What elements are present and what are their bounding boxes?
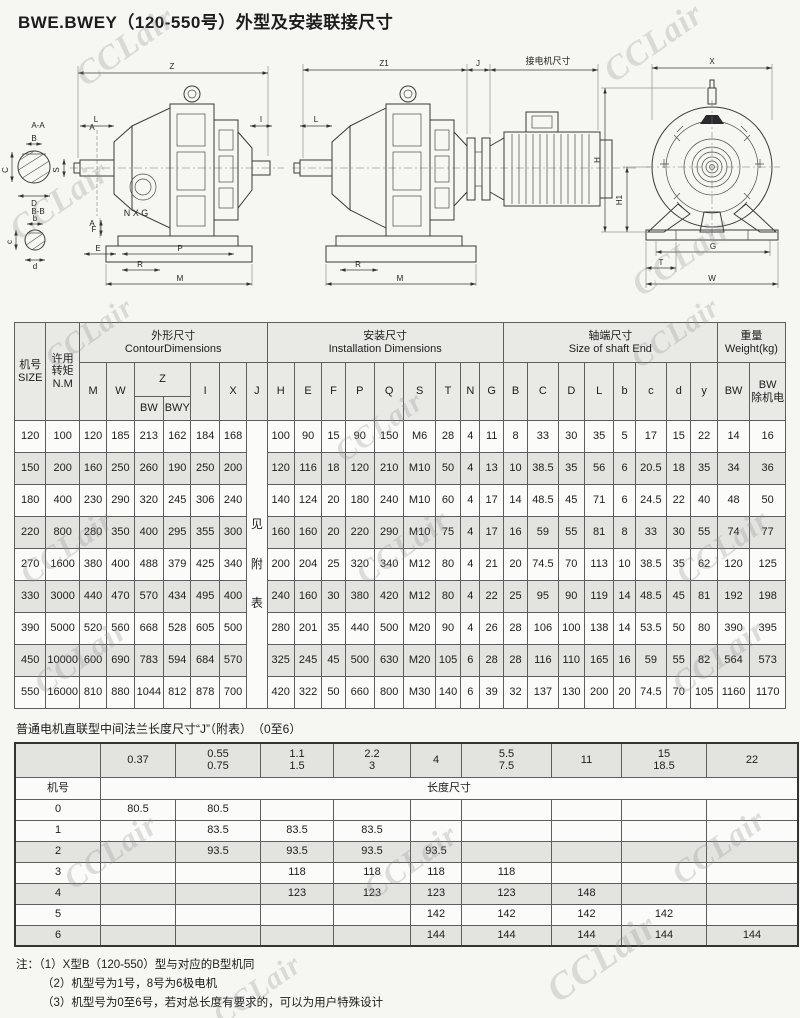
cell: 83.5	[176, 820, 261, 841]
cell: 200	[267, 549, 294, 581]
cell: 379	[164, 549, 191, 581]
cell: 10	[614, 549, 635, 581]
cell: 140	[435, 677, 460, 709]
cell: 440	[345, 613, 374, 645]
cell: 434	[164, 581, 191, 613]
cell: 400	[134, 517, 163, 549]
cell: 684	[191, 645, 219, 677]
dim-label-X: X	[709, 57, 715, 66]
cell: 4	[461, 453, 480, 485]
cell: M10	[404, 485, 435, 517]
cell: 59	[635, 645, 666, 677]
cell: 400	[46, 485, 79, 517]
cell: 322	[294, 677, 321, 709]
cell: 123	[261, 883, 334, 904]
size-row-150: 15020016025026019025020012011618120210M1…	[15, 453, 786, 485]
cell: 201	[294, 613, 321, 645]
cell: 30	[667, 517, 691, 549]
cell: 90	[345, 421, 374, 453]
cell: 32	[503, 677, 527, 709]
flange-row-4: 4123123123123148	[15, 883, 798, 904]
cell	[101, 862, 176, 883]
cell: 59	[528, 517, 558, 549]
cell: 16	[503, 517, 527, 549]
cell: 306	[191, 485, 219, 517]
cell: 28	[435, 421, 460, 453]
cell	[101, 925, 176, 946]
dim-label-Z: Z	[170, 62, 175, 71]
col-L: L	[584, 363, 613, 421]
cell: 150	[375, 421, 404, 453]
cell	[101, 883, 176, 904]
cell: 120	[79, 421, 106, 453]
cell: 162	[164, 421, 191, 453]
cell: 26	[480, 613, 503, 645]
size-row-180: 18040023029032024530624014012420180240M1…	[15, 485, 786, 517]
size-row-120: 120100120185213162184168见附表100901590150M…	[15, 421, 786, 453]
cell: 570	[134, 581, 163, 613]
cell: 4	[461, 485, 480, 517]
size-label-row: 机号长度尺寸	[15, 777, 798, 799]
cell: 17	[635, 421, 666, 453]
footnotes: 注：（1）X型B（120-550）型与对应的B型机同 （2）机型号为1号，8号为…	[16, 956, 383, 1013]
col-BW: BW 除机电	[750, 363, 786, 421]
cell: 93.5	[334, 841, 411, 862]
cell	[411, 799, 462, 820]
dim-label-R2: R	[355, 260, 361, 269]
cell	[622, 799, 707, 820]
cell: 77	[750, 517, 786, 549]
cell: 74.5	[528, 549, 558, 581]
power-col-22: 22	[707, 743, 799, 777]
cell: M10	[404, 517, 435, 549]
cell: 90	[558, 581, 584, 613]
cell: 142	[411, 904, 462, 925]
cell: 3000	[46, 581, 79, 613]
cell: 20.5	[635, 453, 666, 485]
cell: 355	[191, 517, 219, 549]
cell: 25	[503, 581, 527, 613]
cell	[622, 883, 707, 904]
cell	[552, 862, 622, 883]
flange-row-2: 293.593.593.593.5	[15, 841, 798, 862]
cell: 160	[294, 581, 321, 613]
cell: 340	[375, 549, 404, 581]
cell: 56	[584, 453, 613, 485]
cell: 290	[107, 485, 134, 517]
dim-label-M: M	[177, 274, 184, 283]
cell: 38.5	[635, 549, 666, 581]
cell: 120	[717, 549, 749, 581]
cell	[707, 820, 799, 841]
cell: 5000	[46, 613, 79, 645]
cell: 10000	[46, 645, 79, 677]
cell: 570	[219, 645, 246, 677]
cell: M10	[404, 453, 435, 485]
col-H: H	[267, 363, 294, 421]
cell: 110	[558, 645, 584, 677]
cell: 14	[717, 421, 749, 453]
drawing-front-view: X H H1 G T W	[590, 42, 800, 322]
cell: 80.5	[176, 799, 261, 820]
cell: 83.5	[334, 820, 411, 841]
dim-label-d: d	[33, 262, 37, 271]
reducer-body	[70, 86, 284, 262]
flange-row-5: 5142142142142	[15, 904, 798, 925]
cell	[101, 904, 176, 925]
cell: 120	[345, 453, 374, 485]
cell: 118	[334, 862, 411, 883]
machine-no: 5	[15, 904, 101, 925]
cell: 124	[294, 485, 321, 517]
corner-cell	[15, 743, 101, 777]
cell: 812	[164, 677, 191, 709]
machine-no: 4	[15, 883, 101, 904]
cell: 180	[15, 485, 46, 517]
cell: 140	[267, 485, 294, 517]
cell: 130	[558, 677, 584, 709]
cell: 90	[294, 421, 321, 453]
cell	[261, 904, 334, 925]
cell: 20	[322, 517, 345, 549]
cell	[622, 862, 707, 883]
cell: 80	[435, 549, 460, 581]
cell: 70	[558, 549, 584, 581]
cell: 240	[375, 485, 404, 517]
cell: 573	[750, 645, 786, 677]
cell: 350	[107, 517, 134, 549]
cell: 24.5	[635, 485, 666, 517]
cell: 48.5	[635, 581, 666, 613]
cell: 45	[558, 485, 584, 517]
col-C: C	[528, 363, 558, 421]
cell: 81	[691, 581, 717, 613]
col-Q: Q	[375, 363, 404, 421]
cell: 50	[322, 677, 345, 709]
cell: 200	[46, 453, 79, 485]
col-P: P	[345, 363, 374, 421]
col-size: 机号 SIZE	[15, 323, 46, 421]
cell: 340	[219, 549, 246, 581]
cell: 6	[614, 453, 635, 485]
size-row-390: 390500052056066852860550028020135440500M…	[15, 613, 786, 645]
label-motor-dims: 接电机尺寸	[525, 55, 570, 66]
dim-label-T: T	[659, 258, 664, 267]
cell: 213	[134, 421, 163, 453]
cell: 240	[219, 485, 246, 517]
cell: 93.5	[411, 841, 462, 862]
cell: 488	[134, 549, 163, 581]
cell: 564	[717, 645, 749, 677]
cell: 500	[219, 613, 246, 645]
cell: 400	[107, 549, 134, 581]
cell: 80.5	[101, 799, 176, 820]
cell: 180	[345, 485, 374, 517]
cell: 528	[164, 613, 191, 645]
cell: 6	[461, 645, 480, 677]
cell: 106	[528, 613, 558, 645]
flange-row-1: 183.583.583.5	[15, 820, 798, 841]
size-label: 机号	[15, 777, 101, 799]
cell: 810	[79, 677, 106, 709]
cell: 22	[667, 485, 691, 517]
size-row-450: 4501000060069078359468457032524545500630…	[15, 645, 786, 677]
cell: 6	[614, 485, 635, 517]
cell: 62	[691, 549, 717, 581]
machine-no: 0	[15, 799, 101, 820]
note-prefix: 注：	[16, 959, 39, 971]
cell: 123	[334, 883, 411, 904]
cell: 14	[503, 485, 527, 517]
cell: 320	[345, 549, 374, 581]
cell: 320	[134, 485, 163, 517]
cell: 36	[750, 453, 786, 485]
cell: 105	[435, 645, 460, 677]
cell	[334, 925, 411, 946]
power-col-0.37: 0.37	[101, 743, 176, 777]
dim-label-F: F	[92, 225, 97, 234]
cell: 440	[79, 581, 106, 613]
group-shaft-end: 轴端尺寸 Size of shaft End	[503, 323, 717, 363]
cell: 380	[345, 581, 374, 613]
dim-label-C: C	[1, 167, 10, 173]
cell: 800	[375, 677, 404, 709]
group-installation: 安装尺寸 Installation Dimensions	[267, 323, 503, 363]
cell: 33	[635, 517, 666, 549]
cell: 142	[552, 904, 622, 925]
dim-label-I: I	[260, 115, 262, 124]
power-col-15: 15 18.5	[622, 743, 707, 777]
cell: 74	[717, 517, 749, 549]
col-z-BW: BW	[134, 397, 163, 421]
cell: 4	[461, 421, 480, 453]
cell	[334, 799, 411, 820]
dim-label-H: H	[593, 157, 602, 163]
dim-label-R: R	[137, 260, 143, 269]
cell: 116	[294, 453, 321, 485]
cell: 93.5	[176, 841, 261, 862]
cell: M12	[404, 581, 435, 613]
machine-no: 3	[15, 862, 101, 883]
cell	[176, 862, 261, 883]
cell: 560	[107, 613, 134, 645]
cell: 17	[480, 517, 503, 549]
cell: 71	[584, 485, 613, 517]
power-col-5.5: 5.5 7.5	[462, 743, 552, 777]
col-N: N	[461, 363, 480, 421]
dim-label-Z1: Z1	[379, 59, 389, 68]
cell: 25	[322, 549, 345, 581]
cell: 660	[345, 677, 374, 709]
dim-label-P: P	[177, 244, 182, 253]
cell: 34	[717, 453, 749, 485]
cell: 82	[691, 645, 717, 677]
cell: 240	[267, 581, 294, 613]
col-b: b	[614, 363, 635, 421]
machine-no: 6	[15, 925, 101, 946]
flange-row-3: 3118118118118	[15, 862, 798, 883]
note-1: （1）X型B（120-550）型与对应的B型机同	[39, 959, 254, 971]
cell: 144	[411, 925, 462, 946]
cell: 1600	[46, 549, 79, 581]
cell	[101, 841, 176, 862]
cell: 15	[667, 421, 691, 453]
col-y: y	[691, 363, 717, 421]
dim-label-G: G	[710, 242, 716, 251]
reducer-motor-body	[292, 86, 636, 262]
cell: M30	[404, 677, 435, 709]
size-row-330: 330300044047057043449540024016030380420M…	[15, 581, 786, 613]
cell: 290	[375, 517, 404, 549]
cell: 160	[267, 517, 294, 549]
cell	[552, 799, 622, 820]
cell: 118	[462, 862, 552, 883]
cell	[334, 904, 411, 925]
note-3: （3）机型号为0至6号，若对总长度有要求的，可以为用户特殊设计	[16, 994, 383, 1013]
flange-table-caption: 普通电机直联型中间法兰长度尺寸“J”（附表） （0至6）	[16, 720, 301, 737]
cell: 668	[134, 613, 163, 645]
cell: 105	[691, 677, 717, 709]
cell: 123	[411, 883, 462, 904]
cell: 280	[267, 613, 294, 645]
cell: 30	[322, 581, 345, 613]
cell: 500	[375, 613, 404, 645]
cell: 118	[411, 862, 462, 883]
drawing-bwe-side-view: A-A B C D B-B b c	[0, 42, 290, 322]
dimension-table: 机号 SIZE 许用 转矩 N.M 外形尺寸 ContourDimensions…	[14, 322, 786, 709]
cell: 395	[750, 613, 786, 645]
col-Z: Z	[134, 363, 191, 397]
col-J: J	[247, 363, 267, 421]
cell: 300	[219, 517, 246, 549]
cell	[101, 820, 176, 841]
cell	[707, 799, 799, 820]
cell	[707, 841, 799, 862]
col-c: c	[635, 363, 666, 421]
cell: 425	[191, 549, 219, 581]
dim-label-E: E	[95, 244, 100, 253]
cell: 33	[528, 421, 558, 453]
col-D: D	[558, 363, 584, 421]
cell	[707, 883, 799, 904]
cell	[707, 862, 799, 883]
size-row-220: 22080028035040029535530016016020220290M1…	[15, 517, 786, 549]
cell	[707, 904, 799, 925]
col-S: S	[404, 363, 435, 421]
cell: 168	[219, 421, 246, 453]
cell: 137	[528, 677, 558, 709]
col-M: M	[79, 363, 106, 421]
cell: 144	[707, 925, 799, 946]
power-col-0.55: 0.55 0.75	[176, 743, 261, 777]
size-row-270: 270160038040048837942534020020425320340M…	[15, 549, 786, 581]
power-header-row: 0.370.55 0.751.1 1.52.2 345.5 7.51115 18…	[15, 743, 798, 777]
cell: 70	[667, 677, 691, 709]
cell	[462, 841, 552, 862]
cell: 270	[15, 549, 46, 581]
machine-no: 1	[15, 820, 101, 841]
cell	[176, 883, 261, 904]
cell: 690	[107, 645, 134, 677]
cell: 13	[480, 453, 503, 485]
group-contour: 外形尺寸 ContourDimensions	[79, 323, 267, 363]
cell: 18	[667, 453, 691, 485]
cell: 81	[584, 517, 613, 549]
dim-label-L2: L	[314, 115, 319, 124]
cell: 60	[435, 485, 460, 517]
col-I: I	[191, 363, 219, 421]
cell: 500	[345, 645, 374, 677]
cell: 20	[322, 485, 345, 517]
dim-label-NXG: N X G	[124, 208, 149, 218]
cell: 6	[461, 677, 480, 709]
cell: 184	[191, 421, 219, 453]
col-X: X	[219, 363, 246, 421]
cell: 230	[79, 485, 106, 517]
cell: 17	[480, 485, 503, 517]
col-E: E	[294, 363, 321, 421]
cell: 390	[717, 613, 749, 645]
cell: 185	[107, 421, 134, 453]
flange-row-0: 080.580.5	[15, 799, 798, 820]
cell: 48.5	[528, 485, 558, 517]
cell: 165	[584, 645, 613, 677]
cell: 142	[462, 904, 552, 925]
cell: 14	[614, 581, 635, 613]
col-T: T	[435, 363, 460, 421]
cell: 20	[503, 549, 527, 581]
dim-label-H1: H1	[615, 194, 624, 205]
dim-label-W: W	[708, 274, 716, 283]
cell: 200	[219, 453, 246, 485]
cell: 1170	[750, 677, 786, 709]
cell: 10	[503, 453, 527, 485]
cell: 113	[584, 549, 613, 581]
cell: 120	[267, 453, 294, 485]
cell	[552, 841, 622, 862]
cell: 20	[614, 677, 635, 709]
cell: 245	[294, 645, 321, 677]
cell: 80	[691, 613, 717, 645]
col-W: W	[107, 363, 134, 421]
cell: 116	[528, 645, 558, 677]
cell: 14	[614, 613, 635, 645]
cell: 45	[667, 581, 691, 613]
power-col-4: 4	[411, 743, 462, 777]
cell: M20	[404, 645, 435, 677]
cell: 148	[552, 883, 622, 904]
group-weight: 重量 Weight(kg)	[717, 323, 785, 363]
header-group-row: 机号 SIZE 许用 转矩 N.M 外形尺寸 ContourDimensions…	[15, 323, 786, 363]
cell: 125	[750, 549, 786, 581]
cell: 878	[191, 677, 219, 709]
cell: 35	[667, 549, 691, 581]
cell: 144	[622, 925, 707, 946]
cell: 119	[584, 581, 613, 613]
cell: 450	[15, 645, 46, 677]
cell: 28	[480, 645, 503, 677]
cell: 8	[614, 517, 635, 549]
cell: 380	[79, 549, 106, 581]
cell: 245	[164, 485, 191, 517]
cell: 700	[219, 677, 246, 709]
cell: 100	[558, 613, 584, 645]
dim-label-B: B	[31, 134, 36, 143]
cell: 100	[46, 421, 79, 453]
col-d: d	[667, 363, 691, 421]
cell: 22	[480, 581, 503, 613]
col-F: F	[322, 363, 345, 421]
